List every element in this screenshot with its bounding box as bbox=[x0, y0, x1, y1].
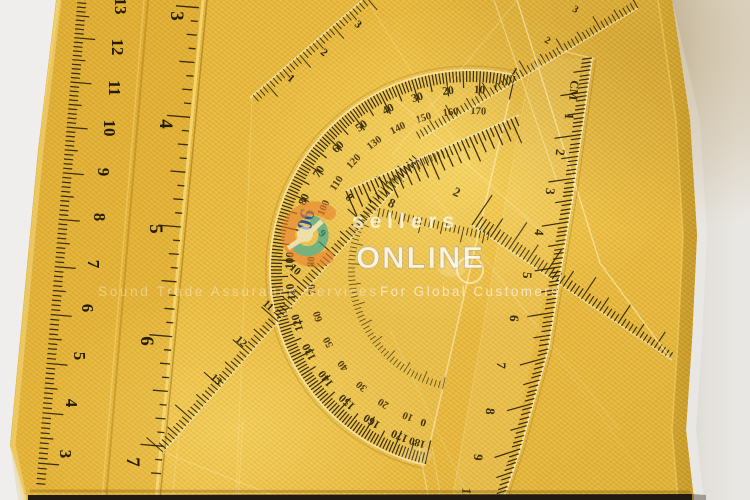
svg-text:7: 7 bbox=[84, 260, 103, 269]
svg-text:ONLINE: ONLINE bbox=[356, 240, 484, 275]
svg-text:3: 3 bbox=[166, 11, 187, 21]
svg-text:1: 1 bbox=[562, 113, 578, 121]
svg-text:12: 12 bbox=[108, 39, 127, 56]
svg-text:11: 11 bbox=[105, 80, 124, 96]
svg-text:5: 5 bbox=[145, 224, 166, 234]
svg-text:5: 5 bbox=[70, 352, 89, 361]
svg-text:4: 4 bbox=[62, 399, 81, 408]
svg-text:10: 10 bbox=[100, 120, 119, 137]
svg-text:6: 6 bbox=[136, 336, 157, 346]
svg-text:6: 6 bbox=[78, 304, 97, 313]
svg-text:7: 7 bbox=[122, 457, 143, 467]
svg-text:4: 4 bbox=[155, 119, 176, 129]
svg-text:3: 3 bbox=[56, 450, 75, 459]
svg-text:CM: CM bbox=[566, 80, 582, 101]
svg-text:2: 2 bbox=[553, 149, 569, 157]
svg-text:13: 13 bbox=[111, 0, 130, 15]
svg-text:Sound Trade Assurance Services: Sound Trade Assurance Services bbox=[98, 284, 376, 299]
svg-text:8: 8 bbox=[90, 213, 109, 222]
svg-text:9: 9 bbox=[94, 168, 113, 177]
svg-text:For Global Customers: For Global Customers bbox=[380, 284, 558, 299]
